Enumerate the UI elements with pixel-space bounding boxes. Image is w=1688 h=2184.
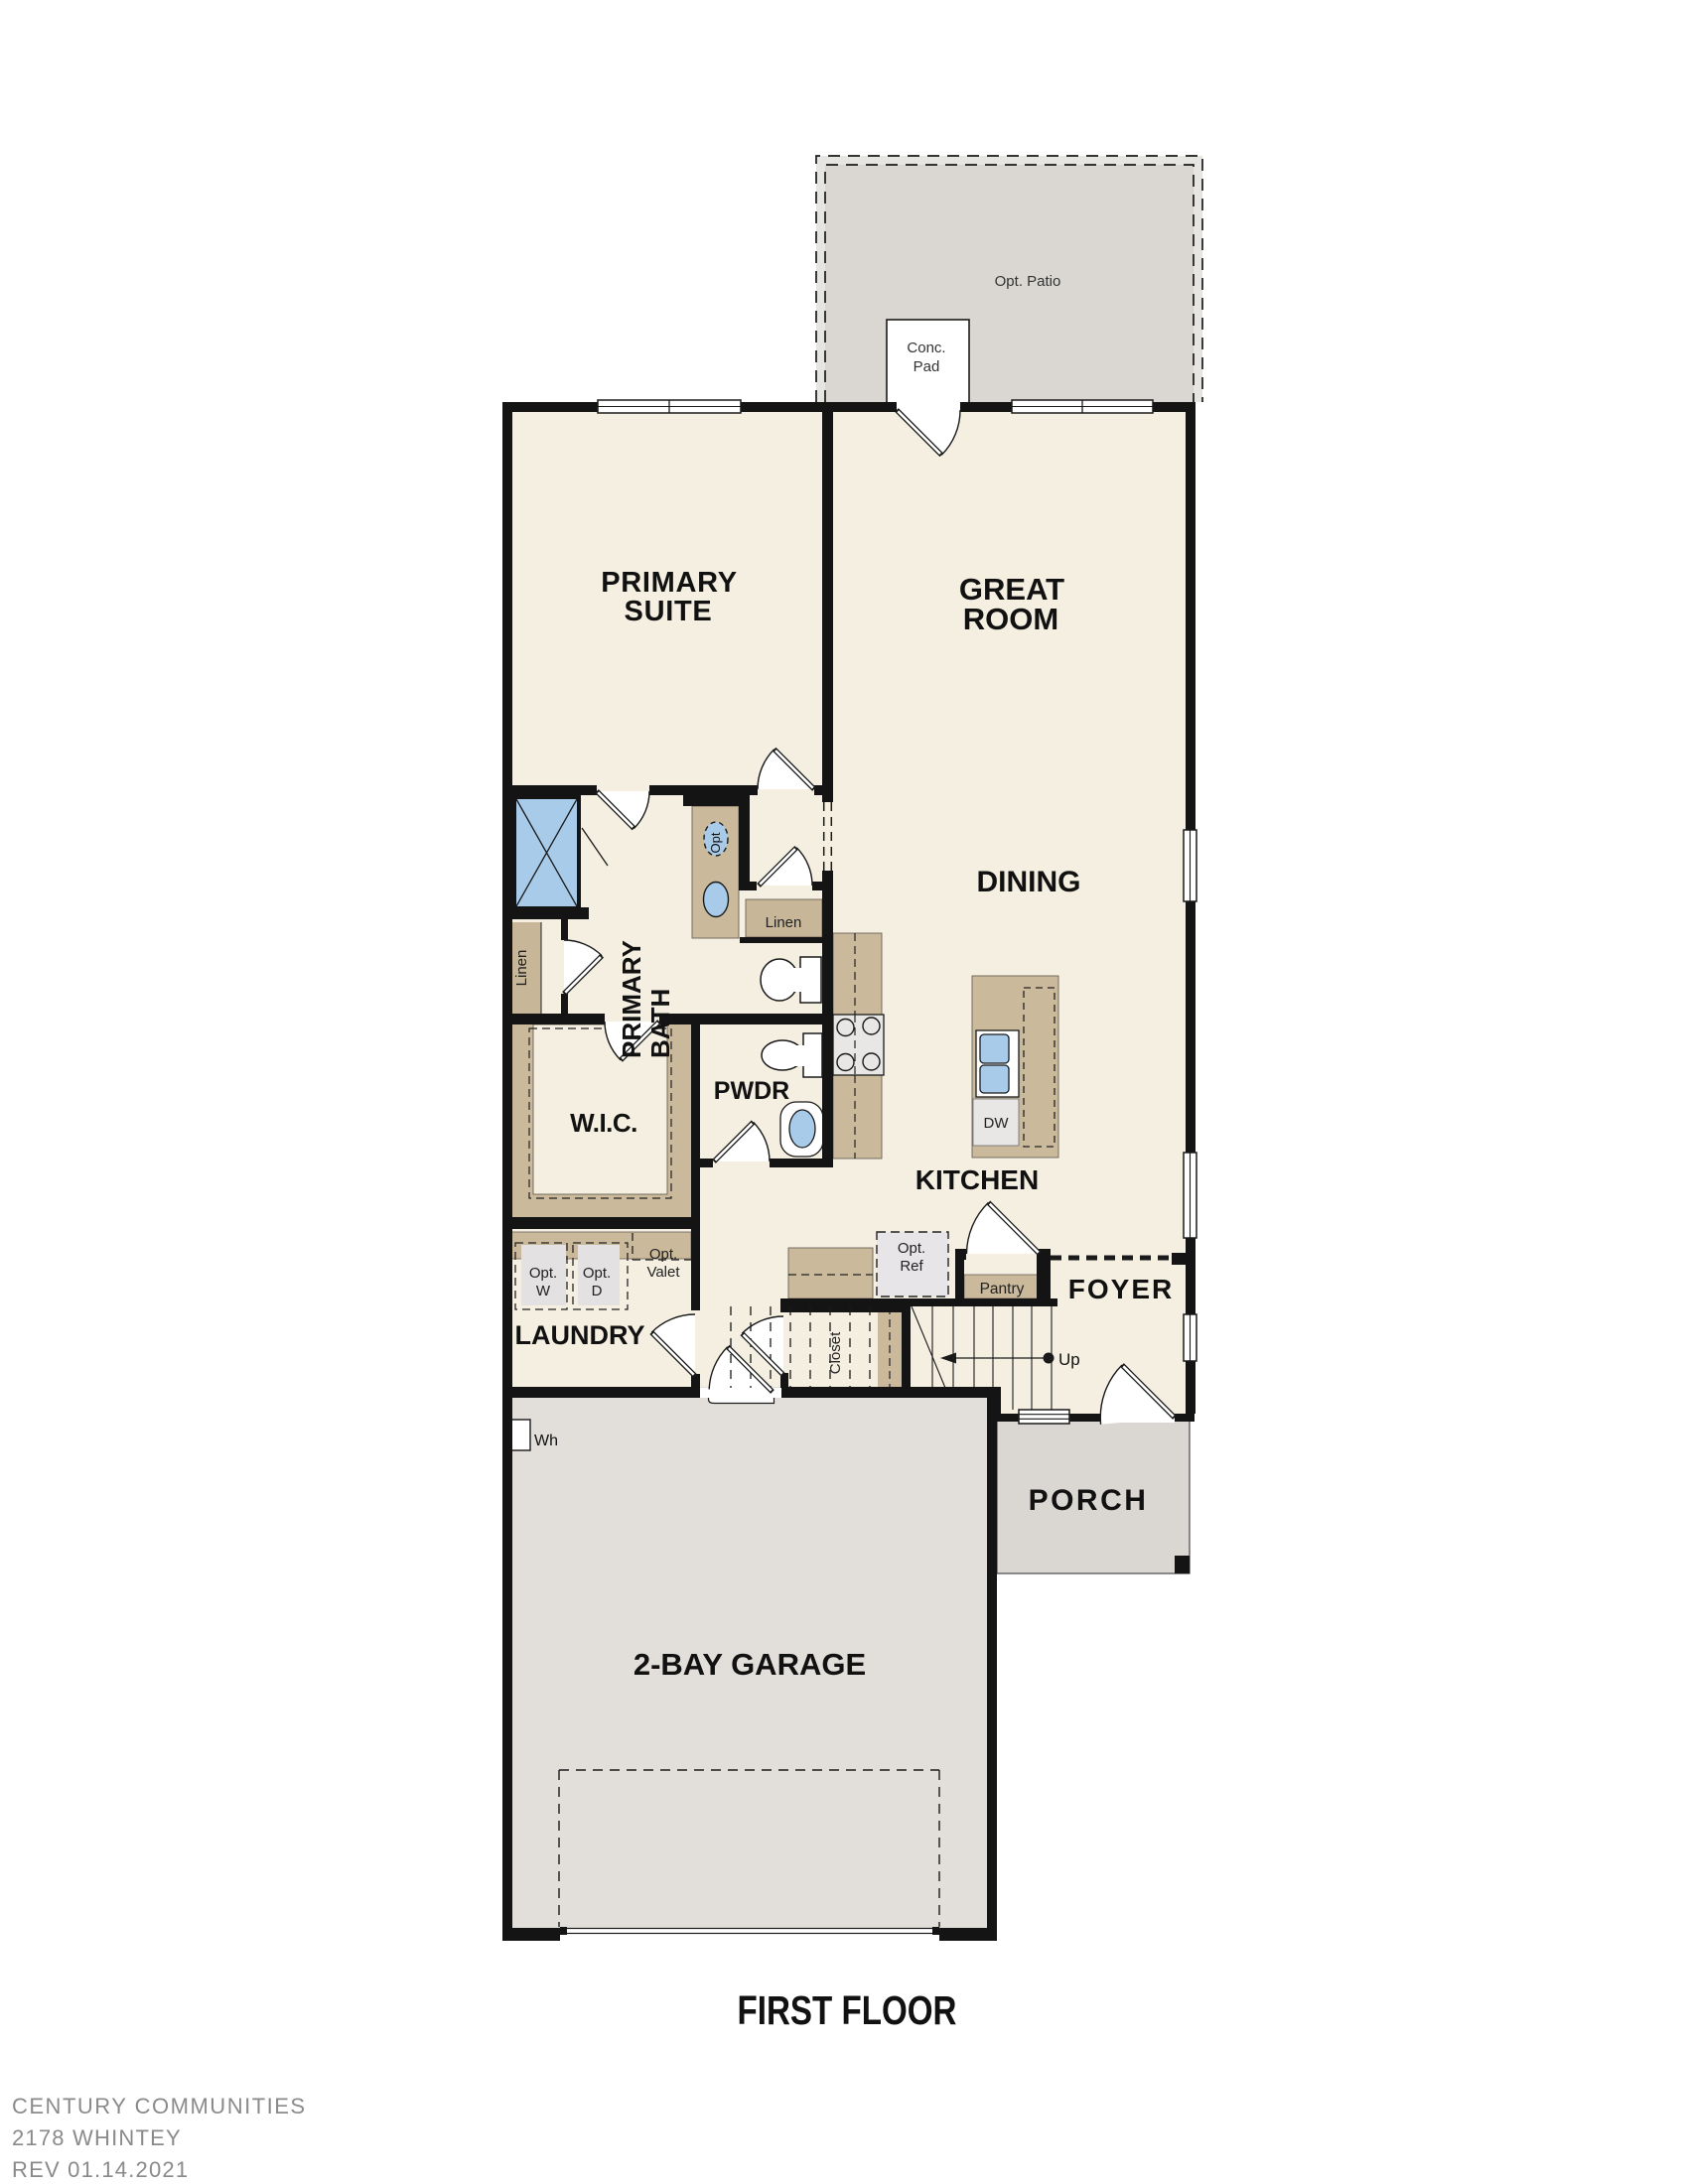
svg-text:FIRST FLOOR: FIRST FLOOR bbox=[738, 1987, 957, 2033]
svg-text:2178 WHINTEY: 2178 WHINTEY bbox=[12, 2125, 182, 2150]
svg-text:DW: DW bbox=[984, 1115, 1010, 1132]
svg-text:Conc.: Conc. bbox=[907, 340, 945, 356]
svg-text:ROOM: ROOM bbox=[963, 602, 1058, 636]
svg-text:Up: Up bbox=[1058, 1350, 1080, 1369]
svg-text:Opt.: Opt. bbox=[529, 1265, 557, 1282]
svg-text:W: W bbox=[536, 1283, 551, 1299]
svg-text:Opt.: Opt. bbox=[583, 1265, 611, 1282]
svg-text:REV 01.14.2021: REV 01.14.2021 bbox=[12, 2157, 189, 2182]
svg-text:DINING: DINING bbox=[977, 866, 1081, 898]
svg-text:PWDR: PWDR bbox=[714, 1077, 789, 1105]
svg-text:PORCH: PORCH bbox=[1029, 1484, 1149, 1517]
svg-text:Closet: Closet bbox=[827, 1331, 844, 1374]
svg-text:SUITE: SUITE bbox=[625, 596, 713, 627]
svg-text:FOYER: FOYER bbox=[1068, 1274, 1174, 1304]
svg-text:Valet: Valet bbox=[646, 1264, 680, 1281]
svg-text:BATH: BATH bbox=[645, 989, 675, 1058]
svg-text:Linen: Linen bbox=[766, 914, 802, 931]
svg-text:D: D bbox=[592, 1283, 603, 1299]
svg-text:Opt. Patio: Opt. Patio bbox=[995, 273, 1061, 290]
svg-text:Pantry: Pantry bbox=[980, 1281, 1025, 1297]
svg-text:Linen: Linen bbox=[513, 950, 530, 987]
svg-text:PRIMARY: PRIMARY bbox=[617, 940, 646, 1058]
svg-text:LAUNDRY: LAUNDRY bbox=[515, 1320, 645, 1350]
svg-text:2-BAY GARAGE: 2-BAY GARAGE bbox=[633, 1647, 866, 1682]
svg-text:PRIMARY: PRIMARY bbox=[601, 567, 738, 599]
svg-text:Wh: Wh bbox=[534, 1433, 558, 1449]
svg-text:CENTURY COMMUNITIES: CENTURY COMMUNITIES bbox=[12, 2094, 307, 2118]
svg-text:W.I.C.: W.I.C. bbox=[570, 1108, 637, 1138]
svg-text:KITCHEN: KITCHEN bbox=[915, 1164, 1039, 1195]
svg-text:Opt: Opt bbox=[708, 832, 723, 853]
svg-text:Ref: Ref bbox=[900, 1258, 923, 1275]
svg-text:Opt.: Opt. bbox=[898, 1240, 925, 1257]
svg-text:Opt.: Opt. bbox=[649, 1246, 677, 1263]
svg-text:Pad: Pad bbox=[914, 358, 940, 375]
